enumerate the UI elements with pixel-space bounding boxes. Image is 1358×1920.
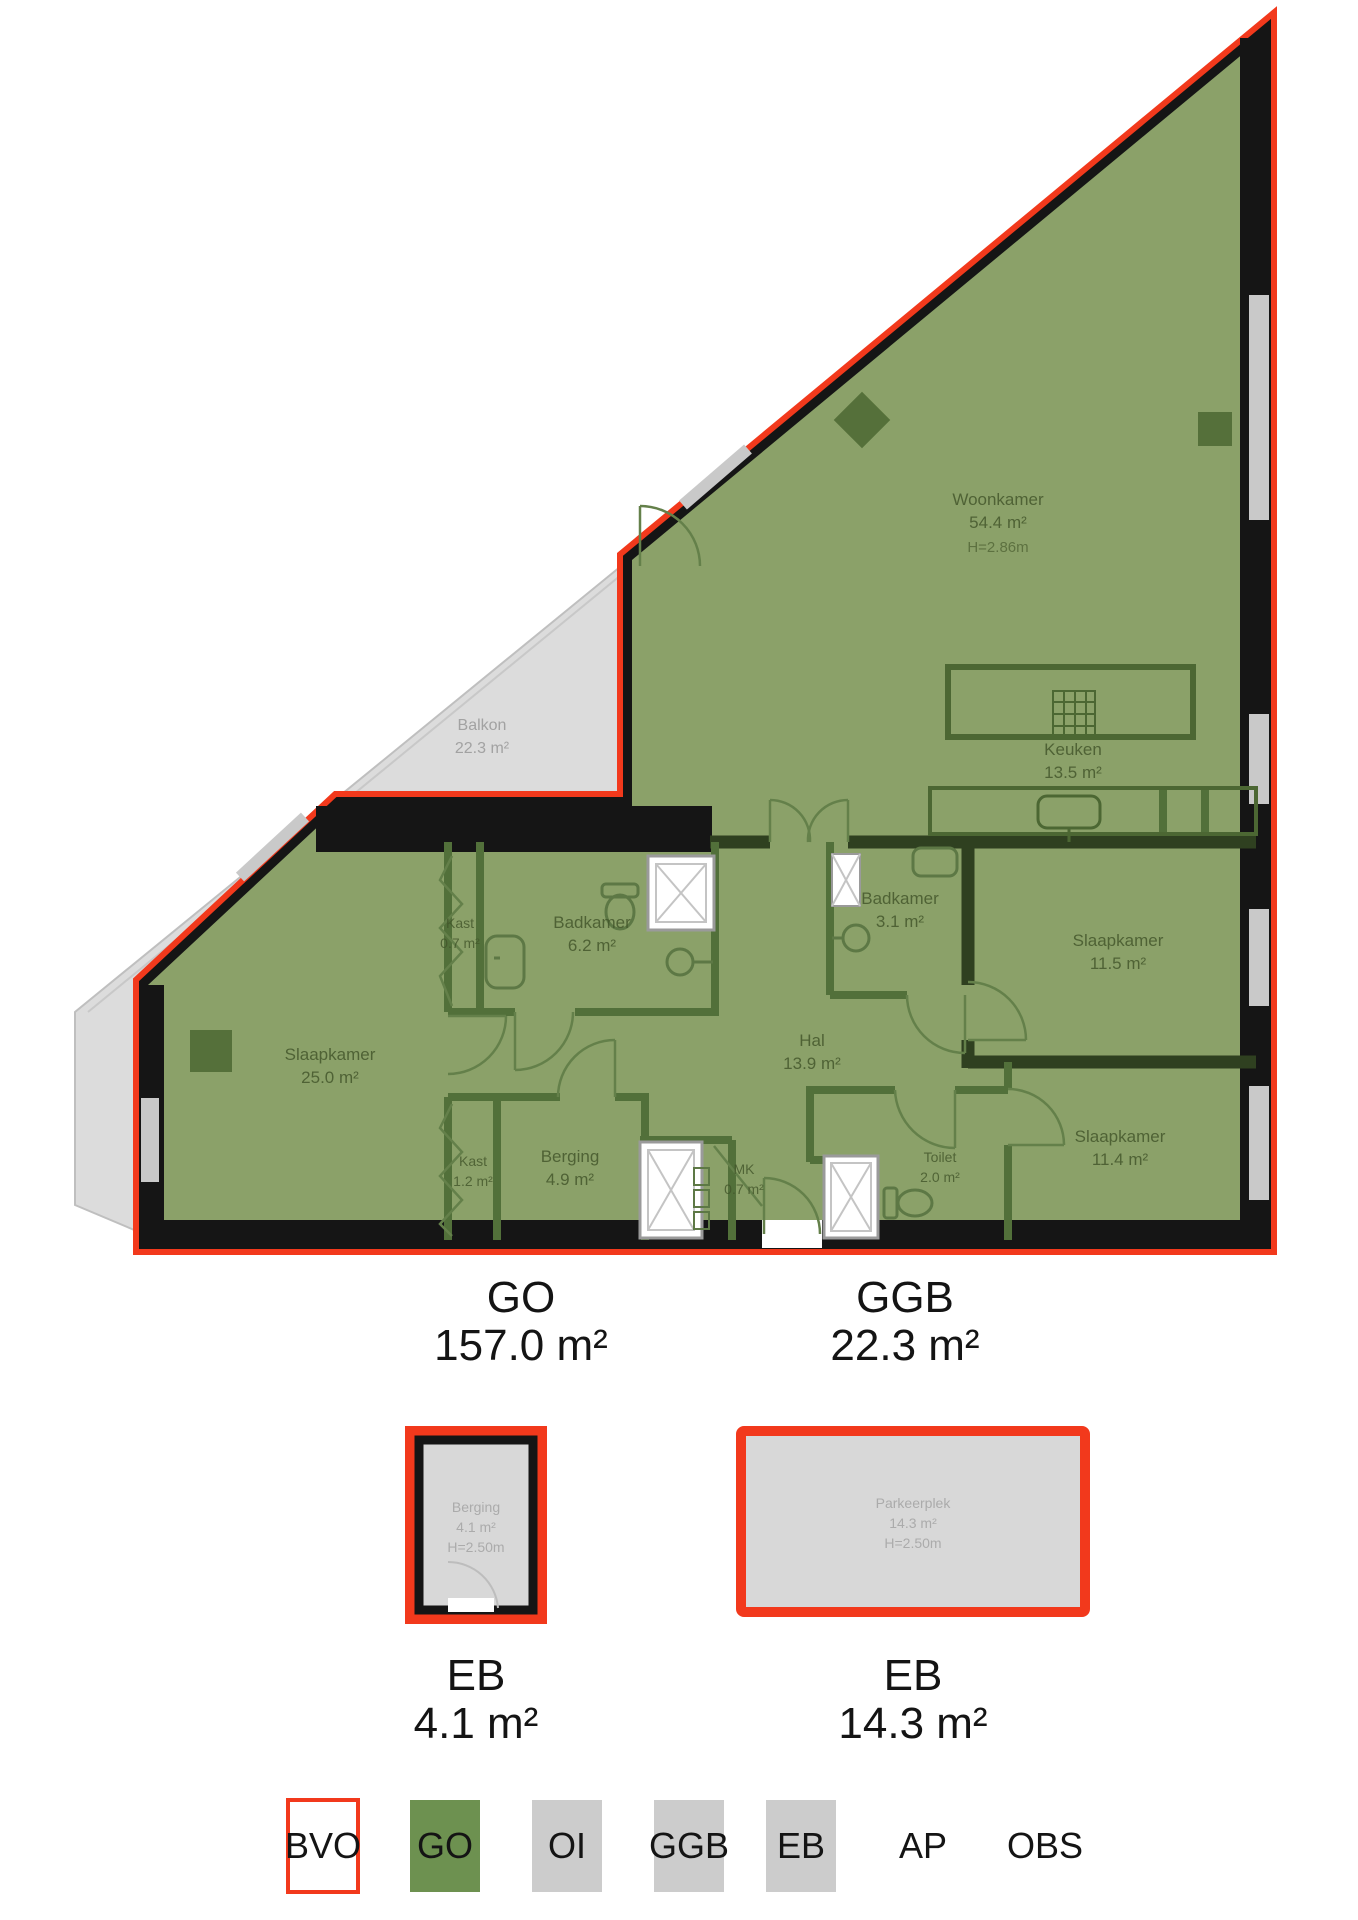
svg-text:Slaapkamer: Slaapkamer — [285, 1045, 376, 1064]
svg-text:Hal: Hal — [799, 1031, 825, 1050]
svg-text:MK: MK — [734, 1161, 756, 1177]
window-left-1 — [141, 1098, 159, 1182]
svg-text:13.5 m²: 13.5 m² — [1044, 763, 1102, 782]
svg-text:Berging: Berging — [541, 1147, 600, 1166]
window-right-1 — [1249, 295, 1269, 520]
svg-text:Toilet: Toilet — [924, 1149, 957, 1165]
legend-label-eb: EB — [777, 1825, 825, 1866]
svg-text:11.5 m²: 11.5 m² — [1090, 954, 1147, 973]
go-area: 157.0 m² — [434, 1321, 608, 1370]
svg-text:Berging: Berging — [452, 1499, 500, 1515]
window-right-2 — [1249, 714, 1269, 804]
legend-label-ap: AP — [899, 1825, 947, 1866]
legend-label-obs: OBS — [1007, 1825, 1083, 1866]
svg-text:Parkeerplek: Parkeerplek — [876, 1495, 952, 1511]
svg-text:Kast: Kast — [459, 1153, 487, 1169]
svg-text:Badkamer: Badkamer — [553, 913, 631, 932]
svg-text:14.3 m²: 14.3 m² — [889, 1515, 937, 1531]
svg-text:Kast: Kast — [446, 915, 474, 931]
eb1-area: 4.1 m² — [414, 1699, 539, 1748]
legend-label-oi: OI — [548, 1825, 586, 1866]
svg-text:H=2.50m: H=2.50m — [447, 1539, 504, 1555]
eb1-code: EB — [447, 1651, 506, 1700]
window-right-4 — [1249, 1086, 1269, 1200]
svg-text:11.4 m²: 11.4 m² — [1092, 1150, 1149, 1169]
ggb-area: 22.3 m² — [830, 1321, 979, 1370]
legend-label-go: GO — [417, 1825, 473, 1866]
svg-text:1.2 m²: 1.2 m² — [453, 1173, 493, 1189]
svg-text:H=2.86m: H=2.86m — [967, 539, 1028, 556]
wall-band-bottom — [148, 1220, 1262, 1242]
eb2-code: EB — [884, 1651, 943, 1700]
summary-labels: GO 157.0 m² GGB 22.3 m² — [434, 1273, 979, 1370]
column-1 — [190, 1030, 232, 1072]
eb-labels: EB 4.1 m² EB 14.3 m² — [414, 1651, 988, 1748]
annex-parkeerplek: Parkeerplek 14.3 m² H=2.50m — [741, 1431, 1085, 1612]
svg-text:13.9 m²: 13.9 m² — [783, 1054, 841, 1073]
shaft-hall-left — [640, 1142, 702, 1238]
svg-text:Keuken: Keuken — [1044, 740, 1102, 759]
svg-text:3.1 m²: 3.1 m² — [876, 912, 925, 931]
annex-berging-door-gap — [448, 1598, 494, 1612]
legend-label-ggb: GGB — [649, 1825, 729, 1866]
shaft-toilet — [824, 1156, 878, 1238]
svg-text:4.9 m²: 4.9 m² — [546, 1170, 595, 1189]
svg-text:54.4 m²: 54.4 m² — [969, 513, 1027, 532]
svg-text:22.3 m²: 22.3 m² — [455, 740, 510, 757]
svg-text:25.0 m²: 25.0 m² — [301, 1068, 359, 1087]
eb2-area: 14.3 m² — [838, 1699, 987, 1748]
svg-text:4.1 m²: 4.1 m² — [456, 1519, 496, 1535]
wall-band-balcony — [316, 806, 712, 852]
ggb-code: GGB — [856, 1273, 954, 1322]
go-code: GO — [487, 1273, 555, 1322]
svg-text:Slaapkamer: Slaapkamer — [1075, 1127, 1166, 1146]
svg-text:Woonkamer: Woonkamer — [952, 490, 1044, 509]
shaft-bathroom2 — [832, 854, 860, 906]
svg-text:H=2.50m: H=2.50m — [884, 1535, 941, 1551]
window-right-3 — [1249, 909, 1269, 1006]
svg-text:6.2 m²: 6.2 m² — [568, 936, 617, 955]
legend: BVO GO OI GGB EB AP OBS — [285, 1800, 1083, 1892]
floorplan-page: Woonkamer 54.4 m² H=2.86m Keuken 13.5 m²… — [0, 0, 1358, 1920]
svg-text:0.7 m²: 0.7 m² — [724, 1181, 764, 1197]
svg-text:0.7 m²: 0.7 m² — [440, 935, 480, 951]
svg-text:Balkon: Balkon — [458, 717, 507, 734]
entrance-threshold — [762, 1220, 822, 1248]
column-2 — [1198, 412, 1232, 446]
svg-text:Badkamer: Badkamer — [861, 889, 939, 908]
legend-label-bvo: BVO — [285, 1825, 361, 1866]
floorplan-canvas: Woonkamer 54.4 m² H=2.86m Keuken 13.5 m²… — [0, 0, 1358, 1920]
shaft-bathroom1 — [648, 856, 714, 930]
annex-berging: Berging 4.1 m² H=2.50m — [410, 1431, 542, 1619]
svg-text:2.0 m²: 2.0 m² — [920, 1169, 960, 1185]
svg-text:Slaapkamer: Slaapkamer — [1073, 931, 1164, 950]
